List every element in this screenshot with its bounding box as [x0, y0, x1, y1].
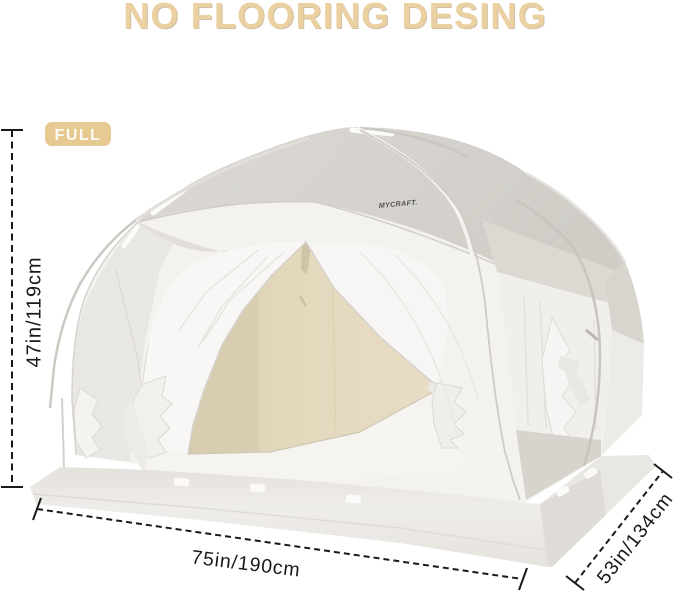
svg-text:NO FLOORING DESING: NO FLOORING DESING — [123, 0, 547, 36]
svg-text:75in/190cm: 75in/190cm — [190, 546, 302, 581]
svg-text:47in/119cm: 47in/119cm — [23, 257, 45, 368]
svg-text:FULL: FULL — [55, 127, 102, 144]
